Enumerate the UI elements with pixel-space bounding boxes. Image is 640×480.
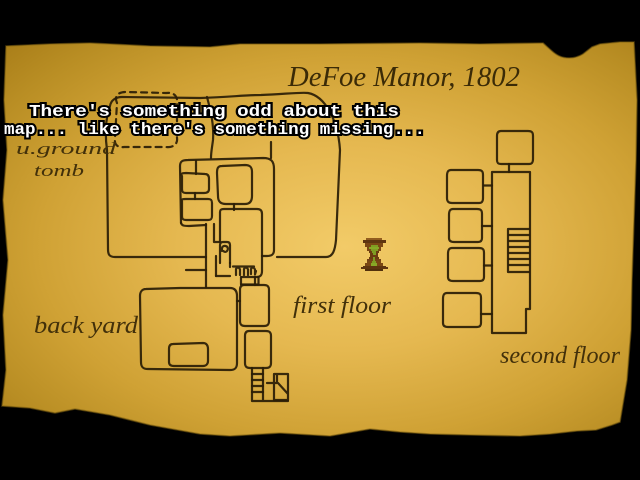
- svg-text:u.ground: u.ground: [16, 139, 117, 158]
- svg-text:tomb: tomb: [34, 161, 84, 180]
- svg-text:second floor: second floor: [500, 343, 621, 369]
- svg-text:There's something odd about th: There's something odd about this: [29, 102, 399, 121]
- svg-text:DeFoe Manor, 1802: DeFoe Manor, 1802: [287, 61, 520, 93]
- svg-text:back yard: back yard: [34, 313, 139, 339]
- svg-text:first floor: first floor: [293, 293, 392, 319]
- svg-text:map... like there's something: map... like there's something missing...: [4, 120, 425, 139]
